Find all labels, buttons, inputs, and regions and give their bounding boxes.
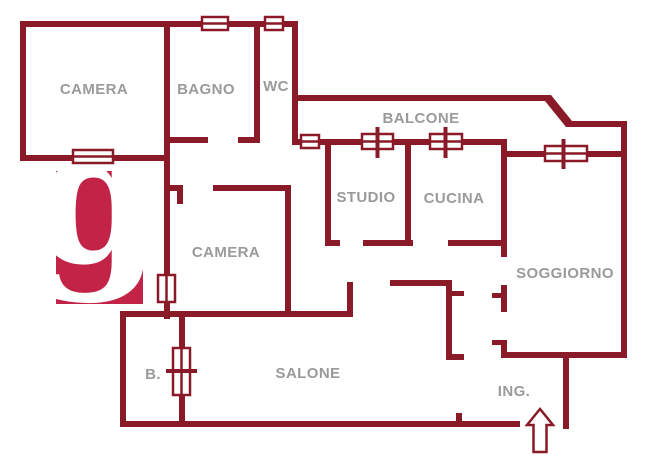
wall-segment — [170, 137, 208, 143]
wall-segment — [566, 121, 627, 127]
wall-segment — [120, 421, 520, 427]
wall-segment — [325, 145, 331, 246]
wall-segment — [295, 95, 545, 101]
wall-segment — [501, 285, 507, 312]
door-jamb — [492, 293, 501, 298]
wall-segment — [164, 185, 183, 191]
wall-segment — [120, 311, 126, 427]
room-label-cucina: CUCINA — [424, 190, 485, 207]
wall-segment — [292, 139, 507, 145]
room-label-ing: ING. — [498, 383, 530, 400]
wall-segment — [363, 240, 413, 246]
wall-segment — [446, 354, 464, 360]
window-icon — [265, 17, 283, 30]
room-label-bagno: BAGNO — [177, 81, 235, 98]
wall-segment — [20, 21, 26, 161]
wall-segment — [448, 240, 507, 246]
window-icon — [202, 17, 228, 30]
window-icon — [73, 150, 113, 163]
wall-segment — [563, 352, 569, 429]
wall-segment — [120, 311, 353, 317]
room-label-studio: STUDIO — [336, 189, 395, 206]
door-jamb — [177, 191, 183, 204]
room-label-salone: SALONE — [276, 365, 341, 382]
door-jamb — [456, 413, 462, 421]
wall-segment — [325, 240, 340, 246]
room-label-wc: WC — [263, 78, 289, 95]
wall-segment — [446, 280, 452, 360]
room-label-balcone: BALCONE — [383, 110, 460, 127]
room-label-soggiorno: SOGGIORNO — [516, 265, 614, 282]
door-jamb — [492, 340, 501, 345]
wall-segment — [238, 137, 260, 143]
door-icon — [158, 275, 175, 302]
wall-segment — [501, 139, 507, 257]
wall-segment — [405, 145, 411, 246]
floorplan-svg: g CAMERA BAGNO WC BALCONE STUDIO CUCINA … — [0, 0, 657, 472]
wall-segment — [213, 185, 291, 191]
wall-segment — [254, 21, 260, 143]
wall-segment — [347, 282, 353, 317]
wall-segment — [292, 21, 298, 145]
room-label-camera-2: CAMERA — [192, 244, 260, 261]
door-jamb — [452, 291, 464, 296]
floorplan: g CAMERA BAGNO WC BALCONE STUDIO CUCINA … — [0, 0, 657, 472]
wall-segment — [285, 185, 291, 317]
window-icon — [301, 135, 319, 148]
room-label-camera-1: CAMERA — [60, 81, 128, 98]
wall-segment — [390, 280, 452, 286]
room-label-b: B. — [145, 366, 161, 383]
